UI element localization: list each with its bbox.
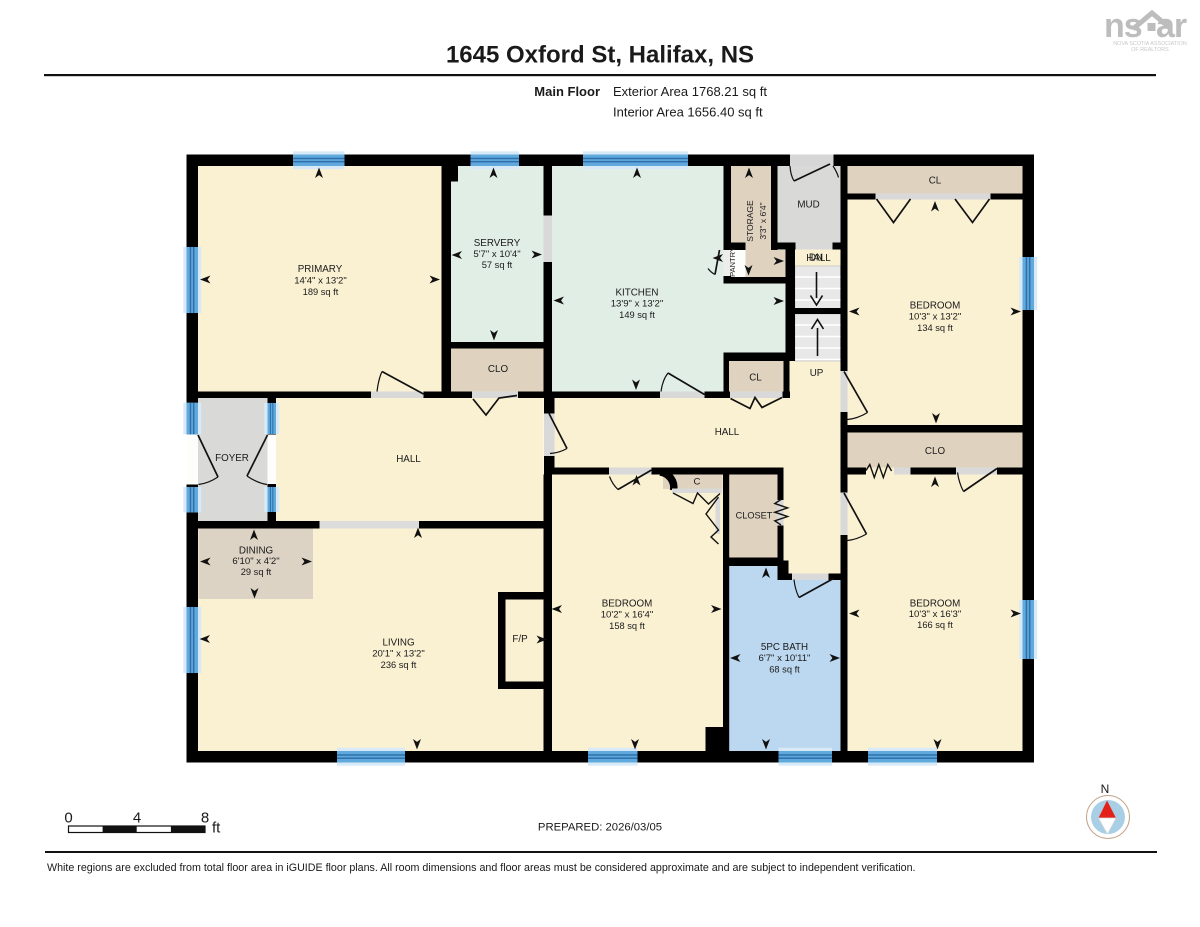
svg-text:KITCHEN: KITCHEN	[615, 288, 658, 299]
svg-text:ar: ar	[1156, 7, 1187, 45]
svg-text:ft: ft	[212, 820, 221, 837]
svg-text:149 sq ft: 149 sq ft	[619, 310, 655, 320]
svg-text:10'3" x 13'2": 10'3" x 13'2"	[909, 312, 962, 323]
svg-text:Exterior Area 1768.21 sq ft: Exterior Area 1768.21 sq ft	[613, 84, 767, 99]
svg-text:14'4" x 13'2": 14'4" x 13'2"	[294, 276, 347, 287]
svg-text:Main Floor: Main Floor	[534, 84, 600, 99]
svg-text:CLOSET: CLOSET	[736, 511, 773, 521]
svg-text:FOYER: FOYER	[215, 453, 249, 464]
svg-text:STORAGE: STORAGE	[745, 200, 755, 242]
svg-text:29 sq ft: 29 sq ft	[241, 567, 272, 577]
svg-text:6'10" x 4'2": 6'10" x 4'2"	[232, 556, 279, 567]
svg-text:13'9" x 13'2": 13'9" x 13'2"	[611, 299, 664, 310]
svg-text:3'3" x 6'4": 3'3" x 6'4"	[758, 202, 768, 239]
svg-text:1645 Oxford St, Halifax, NS: 1645 Oxford St, Halifax, NS	[446, 42, 754, 69]
svg-text:CLO: CLO	[488, 364, 509, 375]
svg-text:C: C	[694, 477, 701, 488]
svg-text:CL: CL	[749, 373, 762, 384]
svg-text:0: 0	[64, 810, 72, 827]
svg-text:236 sq ft: 236 sq ft	[381, 660, 417, 670]
svg-text:BEDROOM: BEDROOM	[602, 599, 653, 610]
svg-text:SERVERY: SERVERY	[474, 238, 521, 249]
svg-text:PREPARED: 2026/03/05: PREPARED: 2026/03/05	[538, 822, 662, 834]
svg-text:BEDROOM: BEDROOM	[910, 599, 961, 610]
svg-text:158 sq ft: 158 sq ft	[609, 621, 645, 631]
svg-text:UP: UP	[810, 368, 824, 379]
svg-text:HALL: HALL	[806, 253, 831, 264]
svg-text:57 sq ft: 57 sq ft	[482, 260, 513, 270]
svg-text:68 sq ft: 68 sq ft	[769, 665, 800, 675]
svg-text:N: N	[1101, 782, 1110, 796]
svg-text:8: 8	[201, 810, 209, 827]
svg-text:F/P: F/P	[512, 634, 528, 645]
svg-text:5PC BATH: 5PC BATH	[761, 642, 808, 653]
svg-text:6'7" x 10'11": 6'7" x 10'11"	[759, 653, 811, 664]
svg-text:HALL: HALL	[396, 454, 421, 465]
svg-text:MUD: MUD	[797, 200, 819, 211]
svg-text:BEDROOM: BEDROOM	[910, 301, 961, 312]
svg-text:20'1" x 13'2": 20'1" x 13'2"	[372, 649, 425, 660]
svg-text:134 sq ft: 134 sq ft	[917, 323, 953, 333]
svg-text:LIVING: LIVING	[382, 638, 414, 649]
svg-text:PANTRY: PANTRY	[728, 247, 737, 277]
svg-text:5'7" x 10'4": 5'7" x 10'4"	[473, 249, 520, 260]
svg-text:CLO: CLO	[925, 446, 946, 457]
svg-text:4: 4	[133, 810, 141, 827]
svg-text:HALL: HALL	[715, 427, 740, 438]
svg-text:166 sq ft: 166 sq ft	[917, 620, 953, 630]
svg-text:CL: CL	[929, 176, 942, 187]
svg-text:PRIMARY: PRIMARY	[298, 264, 343, 275]
svg-text:10'2" x 16'4": 10'2" x 16'4"	[601, 610, 654, 621]
svg-text:10'3" x 16'3": 10'3" x 16'3"	[909, 609, 962, 620]
svg-text:OF REALTORS: OF REALTORS	[1131, 47, 1169, 53]
svg-text:White regions are excluded fro: White regions are excluded from total fl…	[47, 862, 916, 874]
svg-text:DINING: DINING	[239, 546, 273, 557]
svg-text:Interior Area 1656.40 sq ft: Interior Area 1656.40 sq ft	[613, 105, 763, 120]
svg-text:189 sq ft: 189 sq ft	[303, 287, 339, 297]
